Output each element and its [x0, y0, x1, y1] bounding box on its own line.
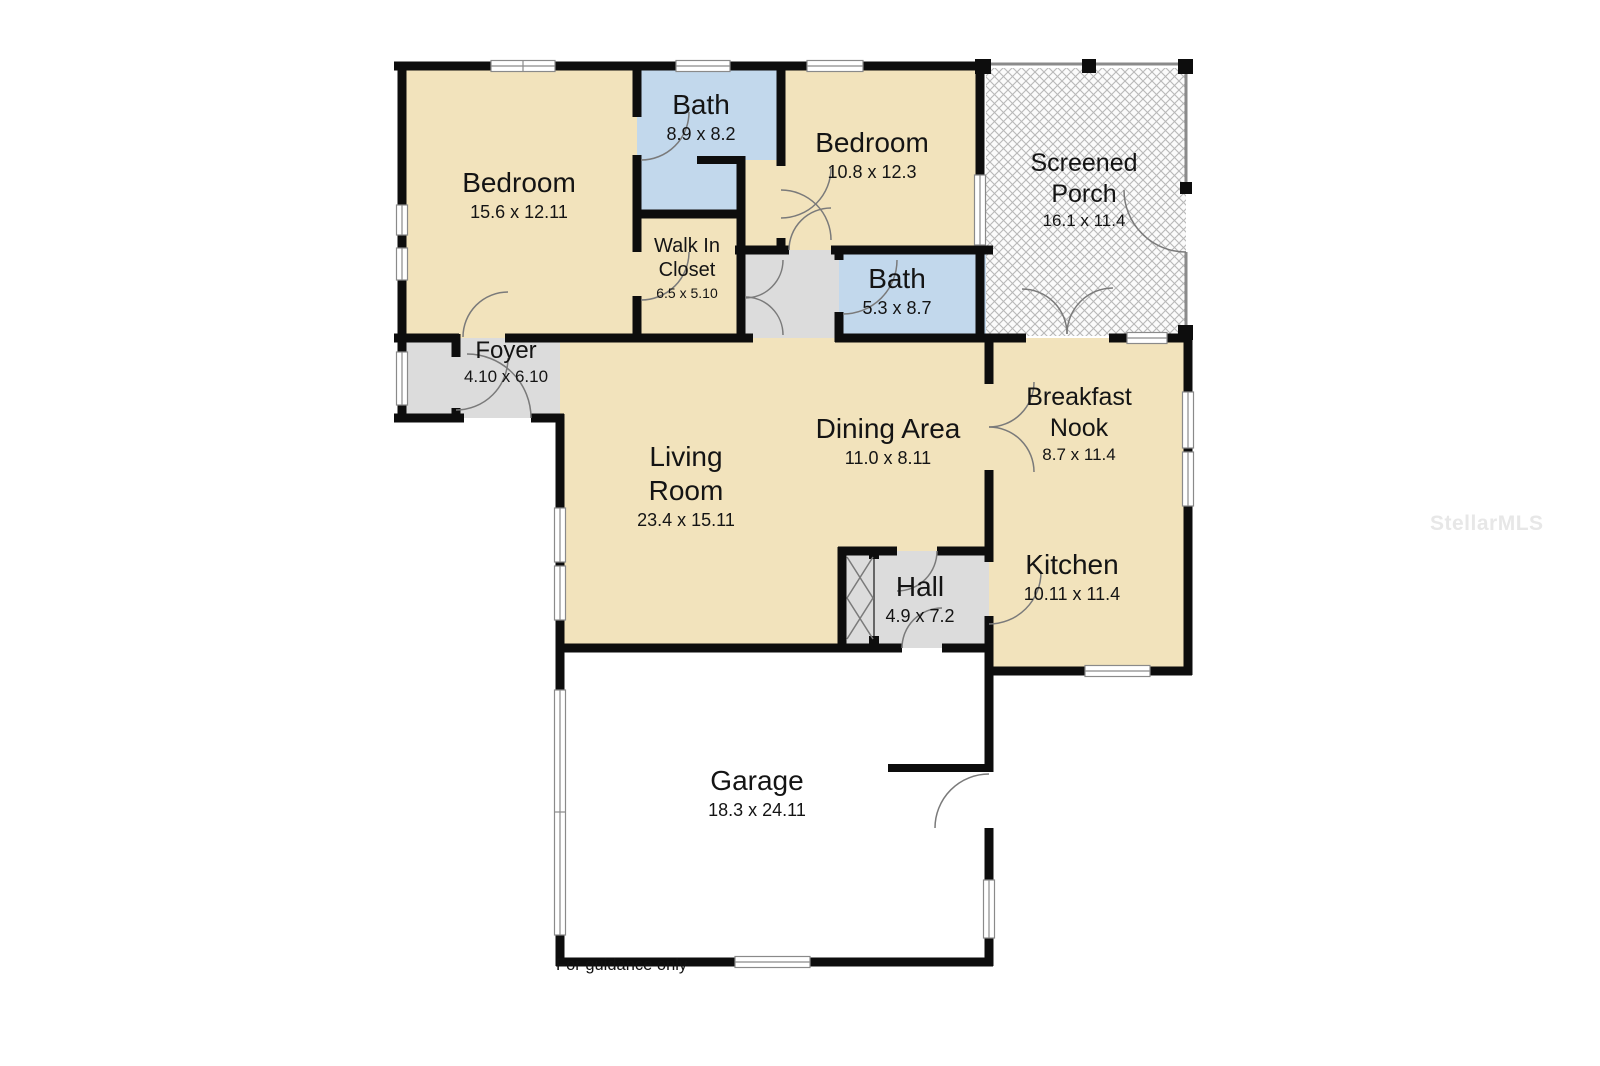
window	[555, 566, 566, 620]
window	[555, 508, 566, 562]
window	[491, 61, 555, 72]
room-walk-in-closet-floor	[637, 214, 741, 338]
window	[676, 61, 730, 72]
room-bath-2-floor	[839, 250, 989, 338]
room-fills	[398, 66, 1188, 962]
window	[1183, 392, 1194, 448]
room-bedroom-2-floor	[781, 66, 982, 250]
disclaimer-text: For guidance only	[556, 956, 687, 975]
corridor-floor	[741, 247, 839, 343]
window	[807, 61, 863, 72]
window	[1127, 333, 1167, 344]
window	[1183, 452, 1194, 506]
window	[397, 205, 408, 235]
window	[397, 352, 408, 405]
window	[975, 175, 986, 245]
watermark-stellar-mls: StellarMLS	[1430, 512, 1544, 536]
bedroom-2-closet-floor	[741, 160, 781, 250]
room-foyer-floor	[398, 338, 560, 418]
floor-plan-drawing	[0, 0, 1600, 1066]
room-hall-floor	[842, 551, 989, 648]
window	[555, 690, 566, 935]
window	[397, 248, 408, 280]
window	[735, 957, 810, 968]
floor-plan-page: Bedroom 15.6 x 12.11 Bath 8.9 x 8.2 Bedr…	[0, 0, 1600, 1066]
room-kitchen-nook-floor	[989, 338, 1188, 671]
window	[1085, 666, 1150, 677]
room-bedroom-1-floor	[402, 66, 637, 338]
window	[984, 880, 995, 938]
room-garage-floor	[560, 648, 989, 962]
